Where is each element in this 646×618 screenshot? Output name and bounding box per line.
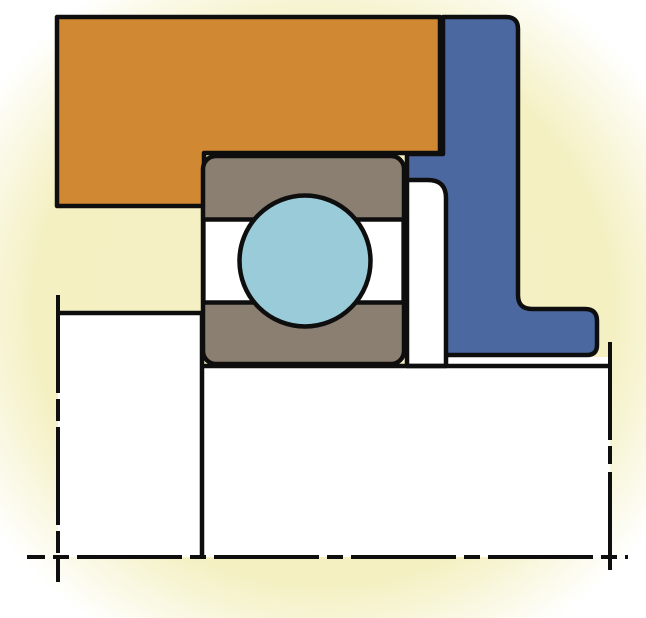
spacer-section bbox=[407, 180, 446, 366]
shoulder-section bbox=[58, 313, 204, 557]
shaft-section bbox=[201, 366, 610, 557]
bearing-diagram bbox=[0, 0, 646, 618]
drawing-canvas bbox=[0, 0, 646, 618]
ball-rolling-element bbox=[240, 196, 371, 327]
